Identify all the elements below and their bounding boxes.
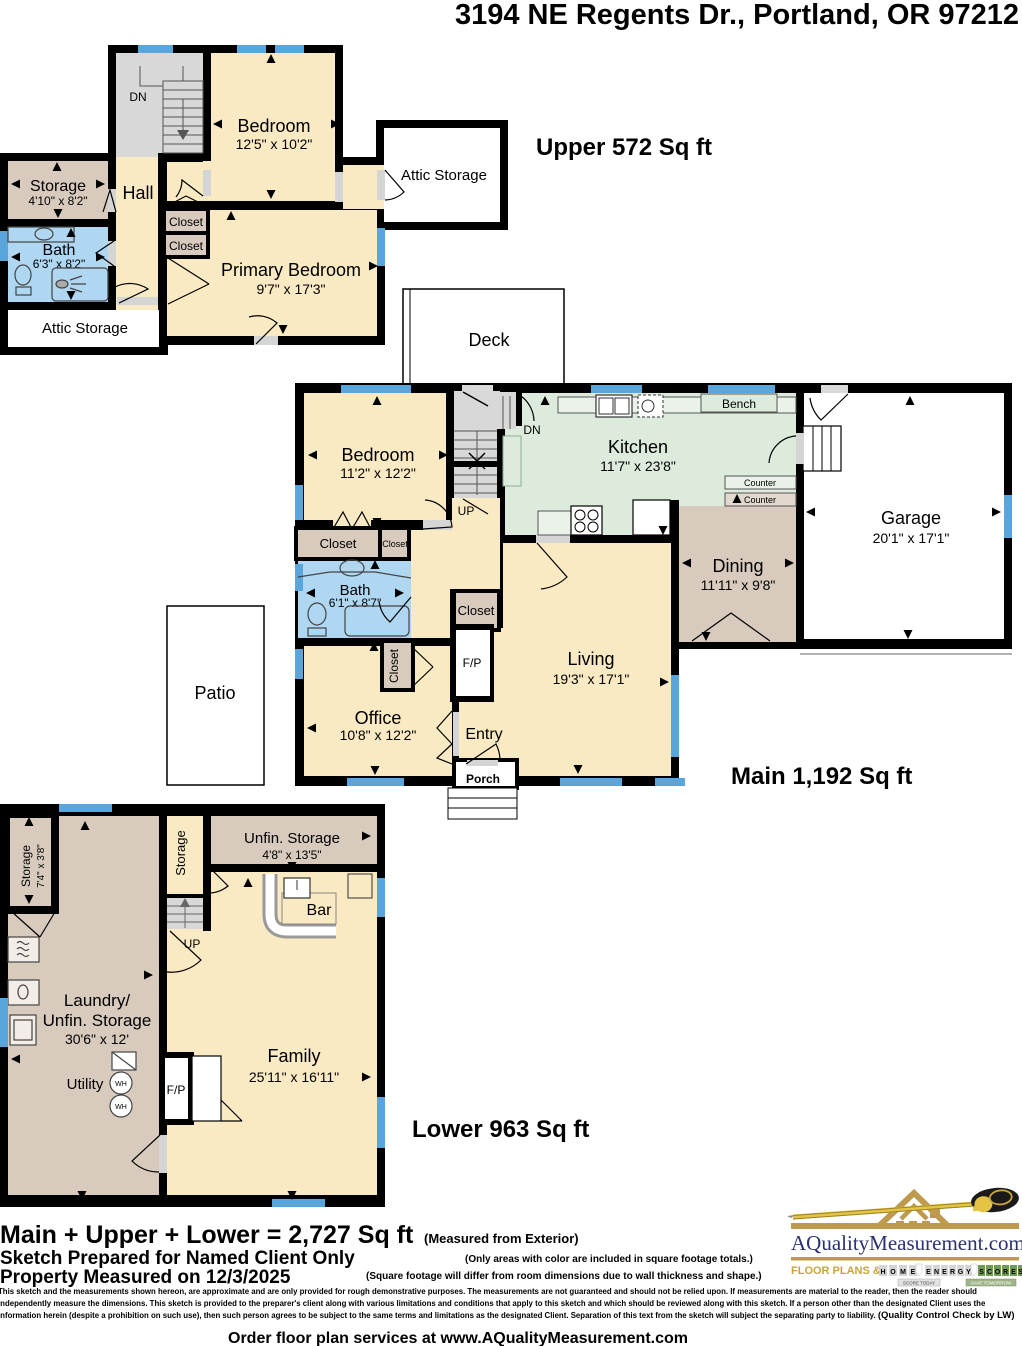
- svg-text:Main + Upper + Lower = 2,727 S: Main + Upper + Lower = 2,727 Sq ft: [0, 1221, 414, 1249]
- svg-text:Storage: Storage: [19, 845, 33, 887]
- svg-text:UP: UP: [458, 504, 475, 518]
- svg-text:Primary Bedroom: Primary Bedroom: [221, 260, 361, 280]
- svg-text:Y: Y: [966, 1269, 971, 1276]
- svg-text:O: O: [890, 1269, 896, 1276]
- svg-text:Kitchen: Kitchen: [608, 437, 668, 457]
- svg-text:(Square footage will differ fr: (Square footage will differ from room di…: [366, 1271, 762, 1282]
- svg-text:Closet: Closet: [382, 539, 408, 549]
- svg-text:DN: DN: [523, 423, 540, 437]
- svg-text:Bench: Bench: [722, 397, 756, 411]
- svg-text:C: C: [987, 1269, 992, 1276]
- svg-text:information herein (despite a: information herein (despite a prohibitio…: [0, 1310, 1015, 1321]
- svg-text:(Measured from Exterior): (Measured from Exterior): [424, 1231, 579, 1246]
- svg-text:E: E: [911, 1269, 916, 1276]
- svg-text:4'10" x 8'2": 4'10" x 8'2": [28, 194, 87, 208]
- svg-text:Closet: Closet: [387, 648, 401, 683]
- svg-text:Attic Storage: Attic Storage: [401, 167, 487, 184]
- svg-text:Family: Family: [268, 1046, 321, 1066]
- svg-text:AQualityMeasurement.com: AQualityMeasurement.com: [791, 1231, 1022, 1255]
- svg-text:Storage: Storage: [173, 830, 188, 876]
- svg-text:E: E: [942, 1269, 947, 1276]
- svg-text:6'1" x 8'7": 6'1" x 8'7": [329, 596, 381, 610]
- svg-text:S: S: [1018, 1269, 1022, 1276]
- svg-text:Entry: Entry: [465, 726, 502, 743]
- svg-text:DN: DN: [129, 90, 146, 104]
- svg-text:FLOOR PLANS &: FLOOR PLANS &: [791, 1265, 881, 1277]
- svg-text:Unfin. Storage: Unfin. Storage: [43, 1011, 152, 1030]
- svg-text:WH: WH: [115, 1104, 127, 1111]
- svg-text:Order floor plan services at w: Order floor plan services at www.AQualit…: [228, 1330, 688, 1346]
- svg-text:N: N: [934, 1269, 939, 1276]
- svg-text:19'3" x 17'1": 19'3" x 17'1": [553, 671, 630, 687]
- svg-text:SAVE TOMORROW: SAVE TOMORROW: [971, 1281, 1012, 1286]
- svg-text:Counter: Counter: [744, 495, 776, 505]
- svg-text:Upper 572 Sq ft: Upper 572 Sq ft: [536, 134, 712, 161]
- svg-text:Patio: Patio: [194, 683, 235, 703]
- svg-text:7'4" x 3'8": 7'4" x 3'8": [36, 844, 47, 888]
- svg-text:Counter: Counter: [744, 478, 776, 488]
- svg-text:F/P: F/P: [167, 1083, 186, 1097]
- svg-text:Storage: Storage: [30, 178, 86, 195]
- svg-text:6'3" x 8'2": 6'3" x 8'2": [33, 257, 85, 271]
- svg-text:Closet: Closet: [169, 215, 204, 229]
- svg-text:Closet: Closet: [458, 603, 495, 618]
- svg-text:4'8" x 13'5": 4'8" x 13'5": [262, 848, 321, 862]
- svg-text:F/P: F/P: [463, 656, 482, 670]
- svg-text:independently measure the dime: independently measure the dimensions. Th…: [0, 1299, 986, 1308]
- svg-text:Attic Storage: Attic Storage: [42, 320, 128, 337]
- svg-text:M: M: [900, 1269, 906, 1276]
- svg-text:20'1" x 17'1": 20'1" x 17'1": [873, 530, 950, 546]
- svg-text:30'6" x 12': 30'6" x 12': [65, 1031, 129, 1047]
- svg-text:H: H: [880, 1269, 885, 1276]
- svg-text:Closet: Closet: [169, 239, 204, 253]
- svg-text:10'8" x 12'2": 10'8" x 12'2": [340, 727, 417, 743]
- svg-text:UP: UP: [184, 937, 201, 951]
- svg-text:E: E: [1011, 1269, 1016, 1276]
- svg-text:Bar: Bar: [307, 902, 333, 919]
- svg-text:Lower 963 Sq ft: Lower 963 Sq ft: [412, 1116, 589, 1143]
- svg-text:12'5" x 10'2": 12'5" x 10'2": [236, 136, 313, 152]
- svg-text:Garage: Garage: [881, 508, 941, 528]
- svg-text:Utility: Utility: [67, 1076, 104, 1093]
- svg-text:(Only areas with color are inc: (Only areas with color are included in s…: [465, 1254, 753, 1265]
- svg-text:11'7" x 23'8": 11'7" x 23'8": [600, 458, 676, 474]
- svg-text:E: E: [926, 1269, 931, 1276]
- svg-text:Dining: Dining: [712, 556, 763, 576]
- svg-text:Laundry/: Laundry/: [64, 991, 130, 1010]
- svg-text:Sketch Prepared for Named Clie: Sketch Prepared for Named Client Only: [0, 1248, 355, 1269]
- svg-text:Hall: Hall: [122, 183, 153, 203]
- svg-text:O: O: [995, 1269, 1001, 1276]
- svg-text:SCORE TODAY: SCORE TODAY: [903, 1281, 935, 1286]
- svg-text:25'11" x 16'11": 25'11" x 16'11": [249, 1069, 339, 1085]
- svg-text:9'7" x 17'3": 9'7" x 17'3": [257, 281, 326, 297]
- svg-text:Main 1,192 Sq ft: Main 1,192 Sq ft: [731, 763, 912, 790]
- svg-text:Deck: Deck: [468, 330, 510, 350]
- svg-text:R: R: [950, 1269, 955, 1276]
- svg-text:S: S: [979, 1269, 984, 1276]
- svg-text:G: G: [958, 1269, 964, 1276]
- svg-text:Living: Living: [567, 649, 614, 669]
- svg-text:Bedroom: Bedroom: [341, 445, 414, 465]
- svg-text:Bedroom: Bedroom: [237, 116, 310, 136]
- svg-text:Unfin. Storage: Unfin. Storage: [244, 830, 340, 847]
- svg-text:Property Measured on 12/3/2025: Property Measured on 12/3/2025: [0, 1267, 291, 1288]
- svg-text:11'11" x 9'8": 11'11" x 9'8": [701, 577, 776, 593]
- svg-text:Porch: Porch: [466, 772, 500, 786]
- svg-text:11'2" x 12'2": 11'2" x 12'2": [340, 465, 416, 481]
- svg-text:3194 NE Regents Dr., Portland,: 3194 NE Regents Dr., Portland, OR 97212: [455, 0, 1019, 31]
- svg-text:R: R: [1003, 1269, 1008, 1276]
- svg-text:Closet: Closet: [320, 536, 357, 551]
- svg-text:WH: WH: [115, 1081, 127, 1088]
- svg-text:This sketch and the measuremen: This sketch and the measurements shown h…: [0, 1287, 977, 1296]
- svg-text:Office: Office: [355, 708, 402, 728]
